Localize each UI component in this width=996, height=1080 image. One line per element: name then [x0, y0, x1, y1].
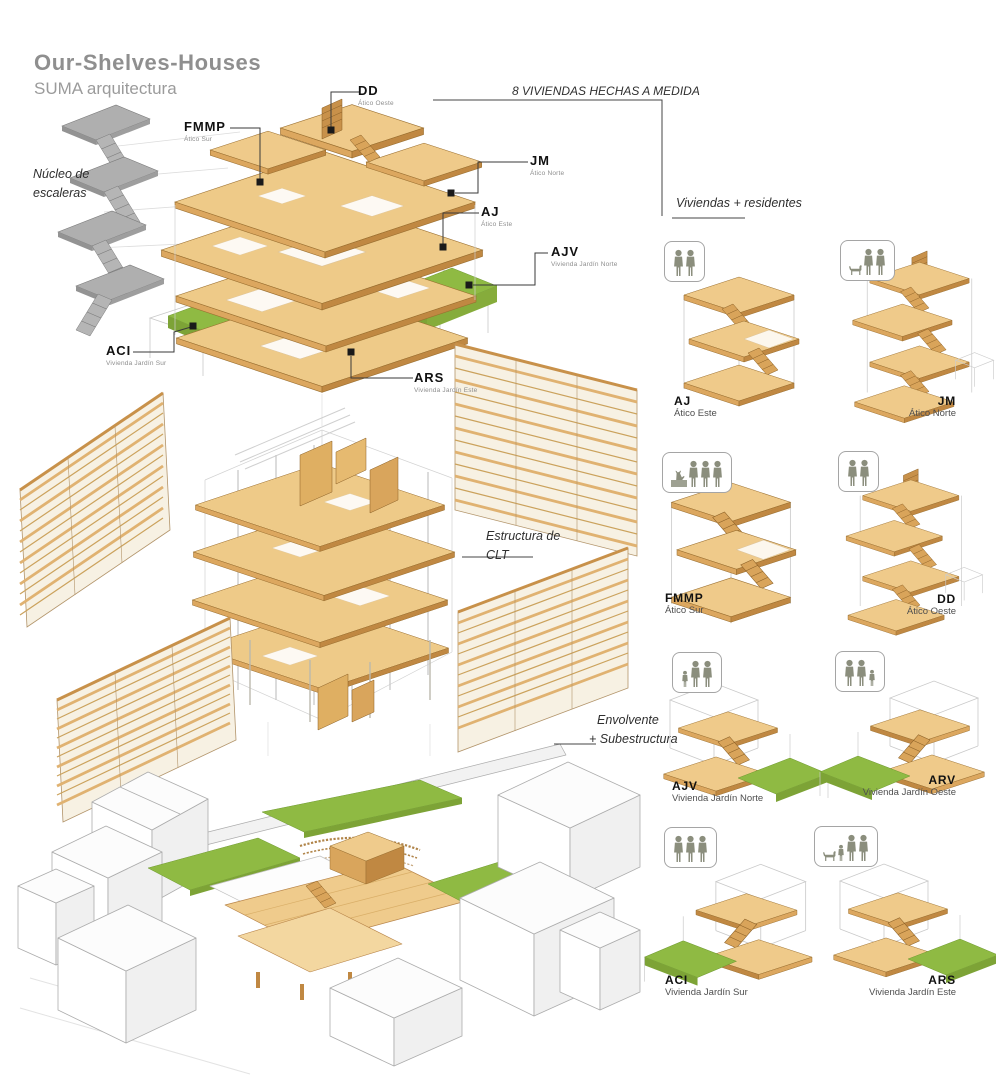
clt-structure-label: Estructura de CLT — [486, 527, 566, 565]
unit-name: Ático Sur — [665, 606, 704, 617]
architecture-diagram-poster: Our-Shelves-Houses SUMA arquitectura Núc… — [0, 0, 996, 1080]
facade-panel-left-upper — [20, 393, 170, 627]
residents-icon — [835, 651, 885, 692]
residents-icon — [662, 452, 732, 493]
label-ars-code: ARS — [414, 370, 478, 385]
site-model-drawing — [18, 744, 640, 1074]
unit-name: Vivienda Jardín Sur — [665, 988, 748, 999]
label-dd: DD Ático Oeste — [358, 83, 394, 107]
unit-name: Vivienda Jardín Norte — [672, 794, 763, 805]
label-aci: ACI Vivienda Jardín Sur — [106, 343, 166, 367]
unit-code: JM — [909, 395, 956, 409]
label-jm-sub: Ático Norte — [530, 170, 564, 177]
unit-code: ARV — [863, 774, 956, 788]
unit-name: Vivienda Jardín Oeste — [863, 788, 956, 799]
residents-icon — [672, 652, 722, 693]
poster-subtitle: SUMA arquitectura — [34, 79, 261, 99]
unit-code: FMMP — [665, 592, 704, 606]
poster-title: Our-Shelves-Houses — [34, 50, 261, 76]
label-ars-sub: Vivienda Jardín Este — [414, 387, 478, 394]
label-ajv: AJV Vivienda Jardín Norte — [551, 244, 618, 268]
made-to-measure-label: 8 VIVIENDAS HECHAS A MEDIDA — [512, 84, 700, 98]
label-jm: JM Ático Norte — [530, 153, 564, 177]
unit-card-ajv: AJV Vivienda Jardín Norte — [652, 648, 822, 843]
unit-name: Ático Norte — [909, 409, 956, 420]
residents-icon — [664, 241, 705, 282]
unit-name: Ático Oeste — [907, 607, 956, 618]
label-fmmp-sub: Ático Sur — [184, 136, 226, 143]
unit-card-fmmp: FMMP Ático Sur — [652, 448, 822, 643]
label-ajv-code: AJV — [551, 244, 618, 259]
residents-icon — [838, 451, 879, 492]
label-ars: ARS Vivienda Jardín Este — [414, 370, 478, 394]
label-aci-code: ACI — [106, 343, 166, 358]
unit-name: Ático Este — [674, 409, 717, 420]
title-block: Our-Shelves-Houses SUMA arquitectura — [34, 50, 261, 99]
unit-card-ars: ARS Vivienda Jardín Este — [826, 825, 996, 1020]
unit-code: ARS — [869, 974, 956, 988]
unit-card-arv: ARV Vivienda Jardín Oeste — [826, 648, 996, 843]
unit-code: ACI — [665, 974, 748, 988]
label-aj-code: AJ — [481, 204, 512, 219]
label-ajv-sub: Vivienda Jardín Norte — [551, 261, 618, 268]
residents-heading: Viviendas + residentes — [676, 196, 802, 210]
facade-panel-right-upper — [455, 344, 637, 556]
label-dd-sub: Ático Oeste — [358, 100, 394, 107]
label-jm-code: JM — [530, 153, 564, 168]
unit-code: DD — [907, 593, 956, 607]
residents-icon — [814, 826, 878, 867]
residents-icon — [664, 827, 717, 868]
unit-card-jm: JM Ático Norte — [826, 230, 996, 425]
label-aj: AJ Ático Este — [481, 204, 512, 228]
unit-card-aci: ACI Vivienda Jardín Sur — [652, 825, 822, 1020]
stair-core-label: Núcleo de escaleras — [33, 165, 119, 204]
label-dd-code: DD — [358, 83, 394, 98]
unit-name: Vivienda Jardín Este — [869, 988, 956, 999]
residents-icon — [840, 240, 895, 281]
label-fmmp: FMMP Ático Sur — [184, 119, 226, 143]
label-aci-sub: Vivienda Jardín Sur — [106, 360, 166, 367]
label-fmmp-code: FMMP — [184, 119, 226, 134]
unit-card-dd: DD Ático Oeste — [826, 448, 996, 643]
label-aj-sub: Ático Este — [481, 221, 512, 228]
unit-code: AJ — [674, 395, 717, 409]
stair-core-drawing — [58, 105, 164, 336]
unit-card-aj: AJ Ático Este — [652, 235, 822, 430]
unit-code: AJV — [672, 780, 763, 794]
